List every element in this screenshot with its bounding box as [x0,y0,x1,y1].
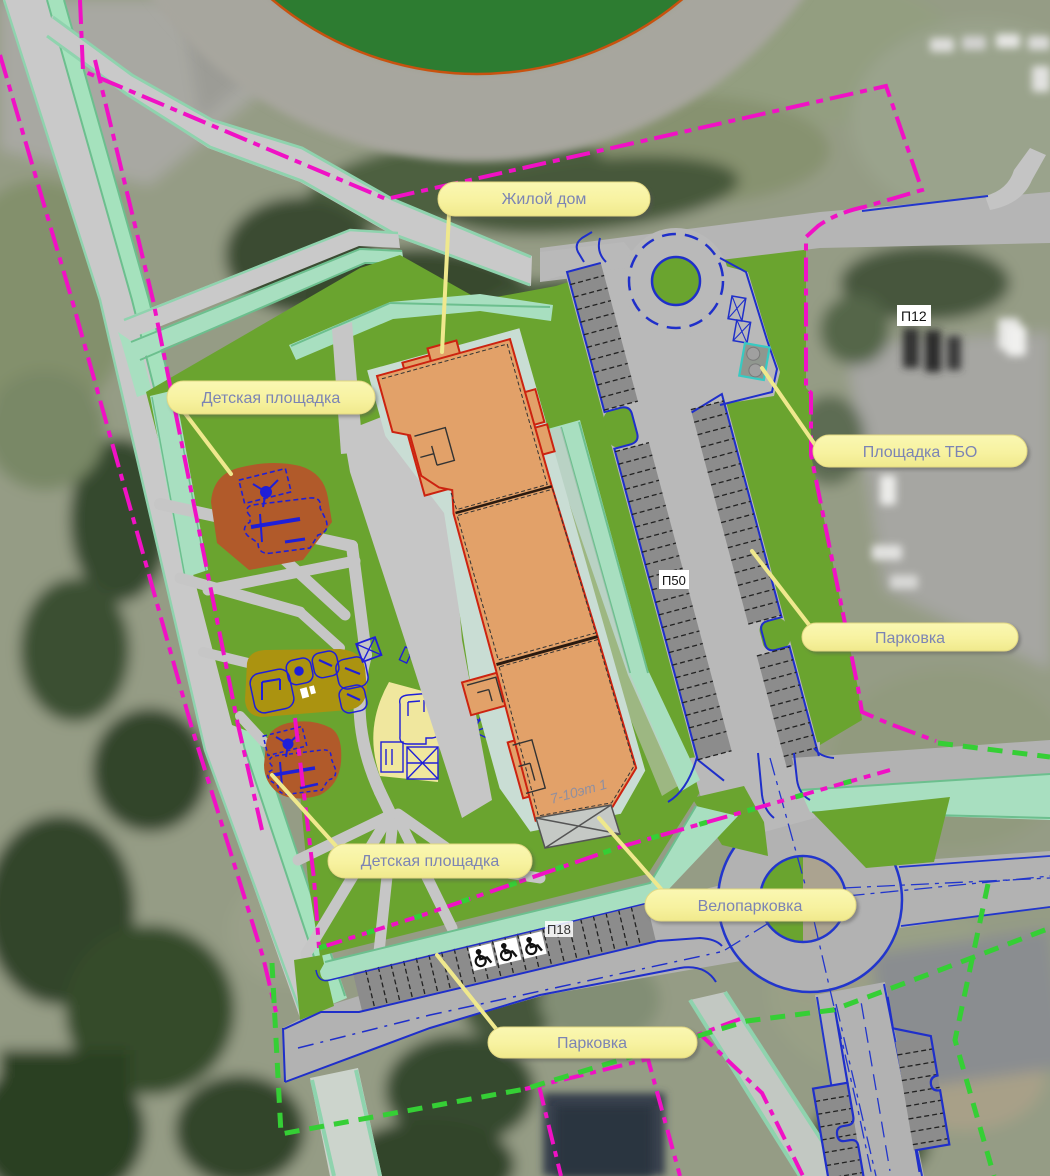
svg-text:Площадка ТБО: Площадка ТБО [863,444,978,461]
svg-text:Парковка: Парковка [875,630,945,647]
svg-text:П12: П12 [901,308,927,324]
svg-text:Жилой дом: Жилой дом [502,191,587,208]
svg-text:П50: П50 [662,573,686,588]
svg-text:П18: П18 [547,922,571,937]
svg-text:Детская площадка: Детская площадка [361,853,500,870]
svg-text:Парковка: Парковка [557,1035,627,1052]
svg-text:Детская площадка: Детская площадка [202,390,341,407]
svg-text:Велопарковка: Велопарковка [698,898,803,915]
